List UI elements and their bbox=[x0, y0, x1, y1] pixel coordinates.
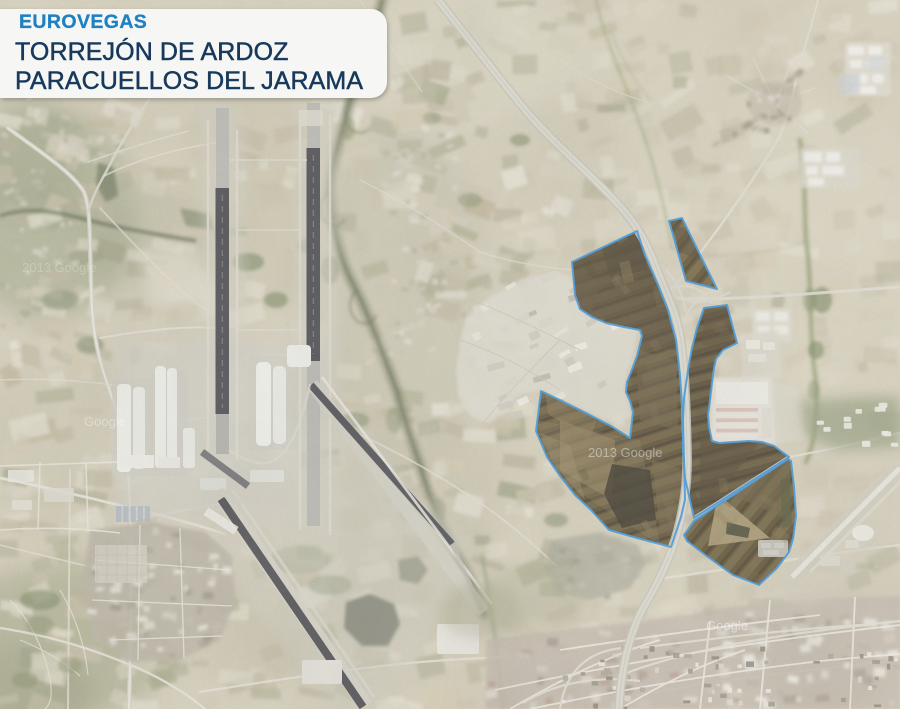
svg-text:2013 Google: 2013 Google bbox=[22, 260, 96, 275]
svg-text:Google: Google bbox=[706, 618, 748, 633]
svg-text:Google: Google bbox=[84, 414, 126, 429]
svg-text:2013 Google: 2013 Google bbox=[588, 445, 662, 460]
